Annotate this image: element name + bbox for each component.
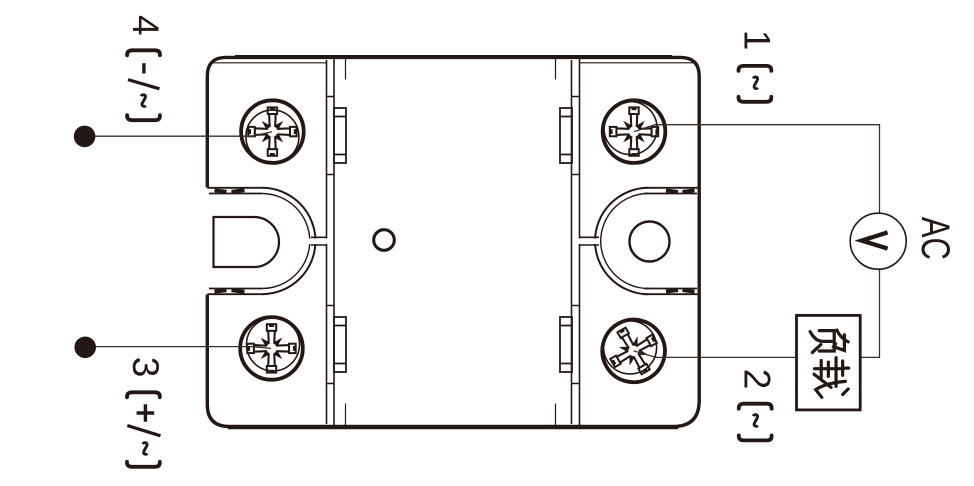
svg-text:2: 2	[737, 369, 778, 390]
svg-text:AC: AC	[913, 217, 957, 260]
svg-text:4: 4	[125, 15, 166, 36]
svg-text:3: 3	[125, 357, 166, 378]
svg-text:1: 1	[737, 30, 778, 51]
